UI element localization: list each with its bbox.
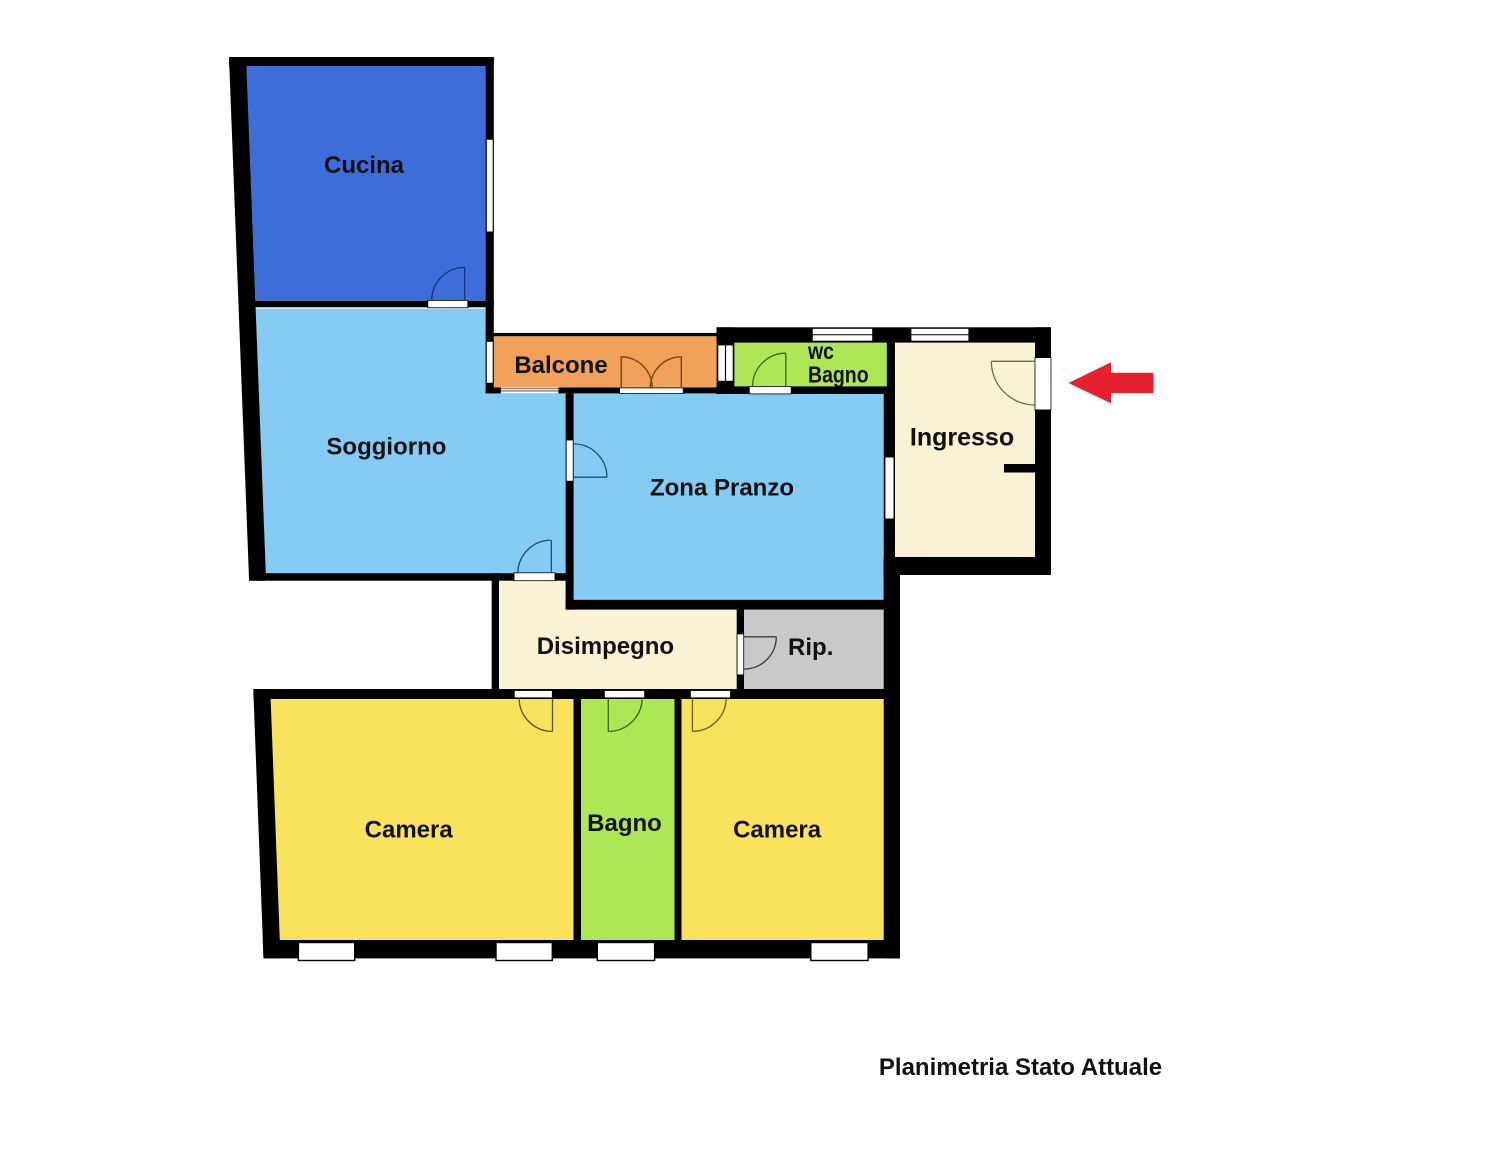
svg-text:Ingresso: Ingresso	[910, 423, 1014, 451]
svg-text:Disimpegno: Disimpegno	[537, 633, 674, 660]
svg-text:Cucina: Cucina	[324, 152, 405, 179]
svg-text:Planimetria Stato Attuale: Planimetria Stato Attuale	[879, 1054, 1162, 1081]
svg-text:Zona Pranzo: Zona Pranzo	[650, 475, 794, 502]
svg-text:Balcone: Balcone	[514, 352, 607, 379]
svg-text:Bagno: Bagno	[808, 362, 869, 388]
svg-text:Bagno: Bagno	[587, 810, 662, 837]
svg-text:Soggiorno: Soggiorno	[326, 434, 446, 461]
svg-text:Camera: Camera	[365, 817, 454, 844]
svg-text:Camera: Camera	[733, 817, 822, 844]
svg-text:Rip.: Rip.	[788, 634, 833, 661]
svg-text:wc: wc	[807, 339, 834, 365]
